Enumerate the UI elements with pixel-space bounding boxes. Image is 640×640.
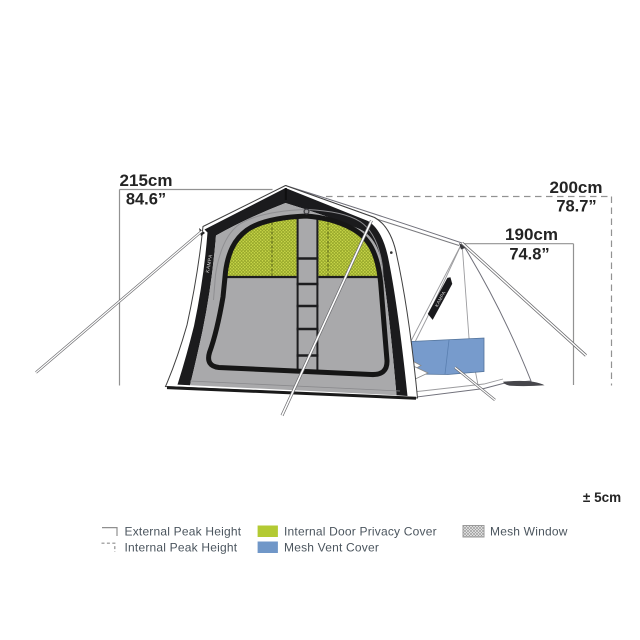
svg-text:Internal Peak Height: Internal Peak Height [125, 541, 238, 555]
svg-text:± 5cm: ± 5cm [583, 490, 621, 505]
svg-text:External Peak Height: External Peak Height [125, 525, 242, 539]
svg-text:Mesh Vent Cover: Mesh Vent Cover [284, 541, 379, 555]
svg-text:78.7”: 78.7” [556, 198, 596, 216]
svg-text:215cm: 215cm [120, 171, 173, 190]
svg-text:84.6”: 84.6” [126, 191, 166, 209]
svg-text:74.8”: 74.8” [509, 246, 549, 264]
svg-text:Mesh Window: Mesh Window [490, 525, 568, 539]
svg-text:Internal Door Privacy Cover: Internal Door Privacy Cover [284, 525, 437, 539]
svg-text:190cm: 190cm [505, 225, 558, 244]
svg-text:200cm: 200cm [550, 178, 603, 197]
